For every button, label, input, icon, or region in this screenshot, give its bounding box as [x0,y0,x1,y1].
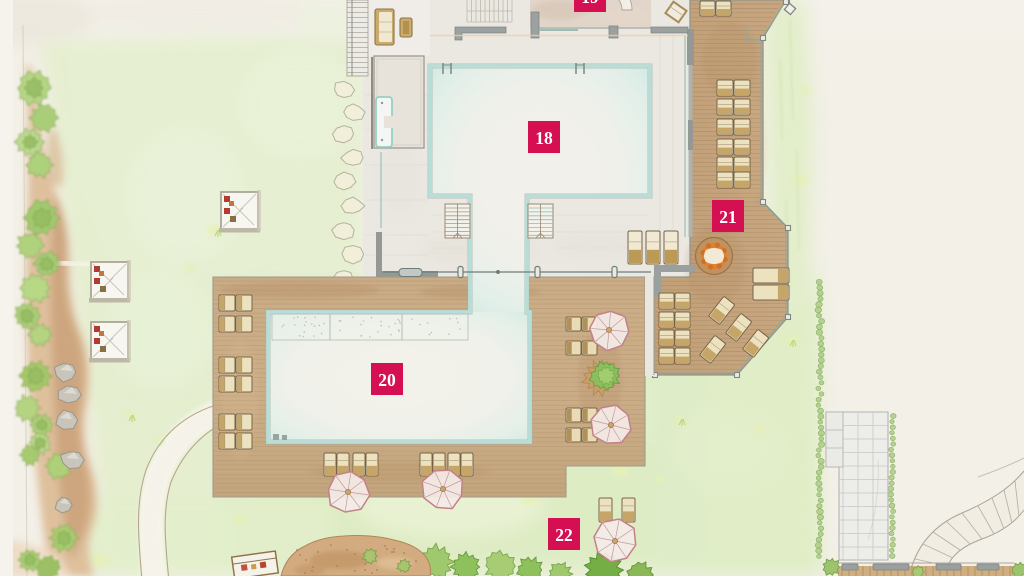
svg-text:18: 18 [535,128,553,148]
svg-text:21: 21 [719,207,737,227]
svg-text:19: 19 [581,0,599,7]
svg-text:22: 22 [555,525,573,545]
svg-text:20: 20 [378,370,396,390]
